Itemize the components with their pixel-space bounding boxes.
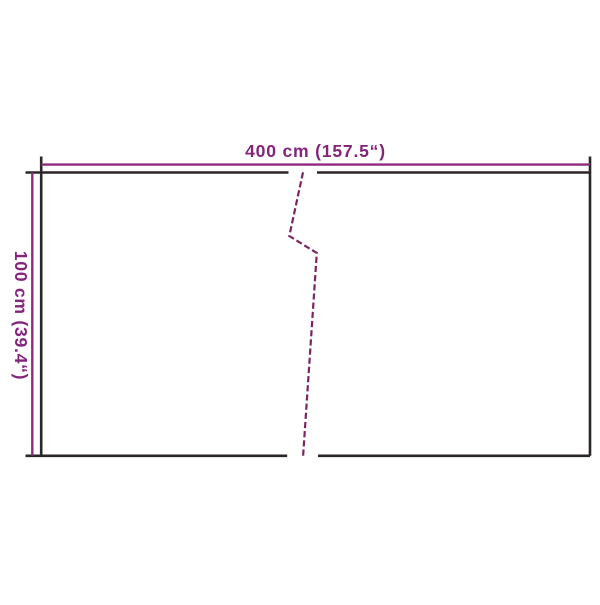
svg-text:100 cm (39.4“): 100 cm (39.4“) [11, 251, 31, 380]
svg-text:400 cm (157.5“): 400 cm (157.5“) [245, 141, 386, 161]
